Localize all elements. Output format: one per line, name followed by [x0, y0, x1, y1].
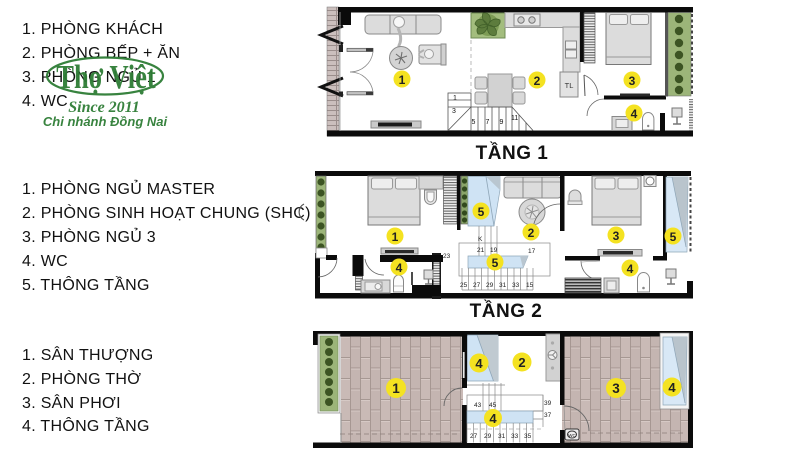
svg-text:33: 33 — [511, 433, 519, 440]
svg-text:1: 1 — [399, 73, 406, 87]
svg-text:39: 39 — [544, 400, 552, 407]
svg-text:Thợ Việt: Thợ Việt — [56, 58, 156, 96]
svg-text:5: 5 — [492, 256, 499, 270]
svg-text:29: 29 — [484, 433, 492, 440]
svg-text:31: 31 — [499, 282, 507, 289]
svg-text:5: 5 — [478, 205, 485, 219]
svg-text:4: 4 — [631, 107, 638, 121]
svg-text:2: 2 — [534, 74, 541, 88]
svg-text:1: 1 — [453, 95, 457, 102]
svg-text:3: 3 — [613, 229, 620, 243]
svg-text:17: 17 — [528, 248, 536, 255]
svg-text:3: 3 — [612, 381, 620, 396]
svg-text:7: 7 — [486, 119, 490, 126]
svg-text:37: 37 — [544, 412, 552, 419]
svg-text:2: 2 — [518, 355, 525, 370]
svg-text:5: 5 — [670, 230, 677, 244]
svg-text:11: 11 — [511, 115, 518, 122]
svg-text:23: 23 — [443, 253, 451, 260]
svg-text:19: 19 — [490, 247, 498, 254]
svg-text:1: 1 — [392, 381, 400, 396]
svg-text:2: 2 — [528, 226, 535, 240]
svg-text:9: 9 — [500, 119, 504, 126]
svg-text:27: 27 — [473, 282, 481, 289]
svg-text:4: 4 — [627, 262, 634, 276]
svg-text:3: 3 — [629, 74, 636, 88]
svg-text:3: 3 — [452, 108, 456, 115]
svg-text:4: 4 — [475, 356, 483, 371]
svg-text:1: 1 — [392, 230, 399, 244]
svg-text:4: 4 — [489, 411, 497, 426]
svg-text:35: 35 — [524, 433, 532, 440]
svg-text:TẦNG 1: TẦNG 1 — [476, 142, 549, 164]
svg-text:25: 25 — [460, 282, 468, 289]
svg-text:21: 21 — [477, 247, 485, 254]
svg-text:31: 31 — [498, 433, 506, 440]
svg-text:4: 4 — [396, 261, 403, 275]
svg-text:27: 27 — [470, 433, 478, 440]
svg-text:45: 45 — [489, 402, 497, 409]
svg-text:33: 33 — [512, 282, 520, 289]
svg-text:29: 29 — [486, 282, 494, 289]
svg-text:4: 4 — [668, 380, 676, 395]
svg-text:TẦNG 2: TẦNG 2 — [470, 300, 543, 322]
svg-text:WC: WC — [568, 433, 576, 438]
svg-text:Chi nhánh Đồng Nai: Chi nhánh Đồng Nai — [43, 114, 168, 129]
svg-text:K: K — [478, 236, 483, 243]
svg-text:15: 15 — [526, 282, 534, 289]
svg-text:5: 5 — [472, 119, 476, 126]
svg-text:43: 43 — [474, 402, 482, 409]
svg-text:TL: TL — [565, 81, 574, 90]
